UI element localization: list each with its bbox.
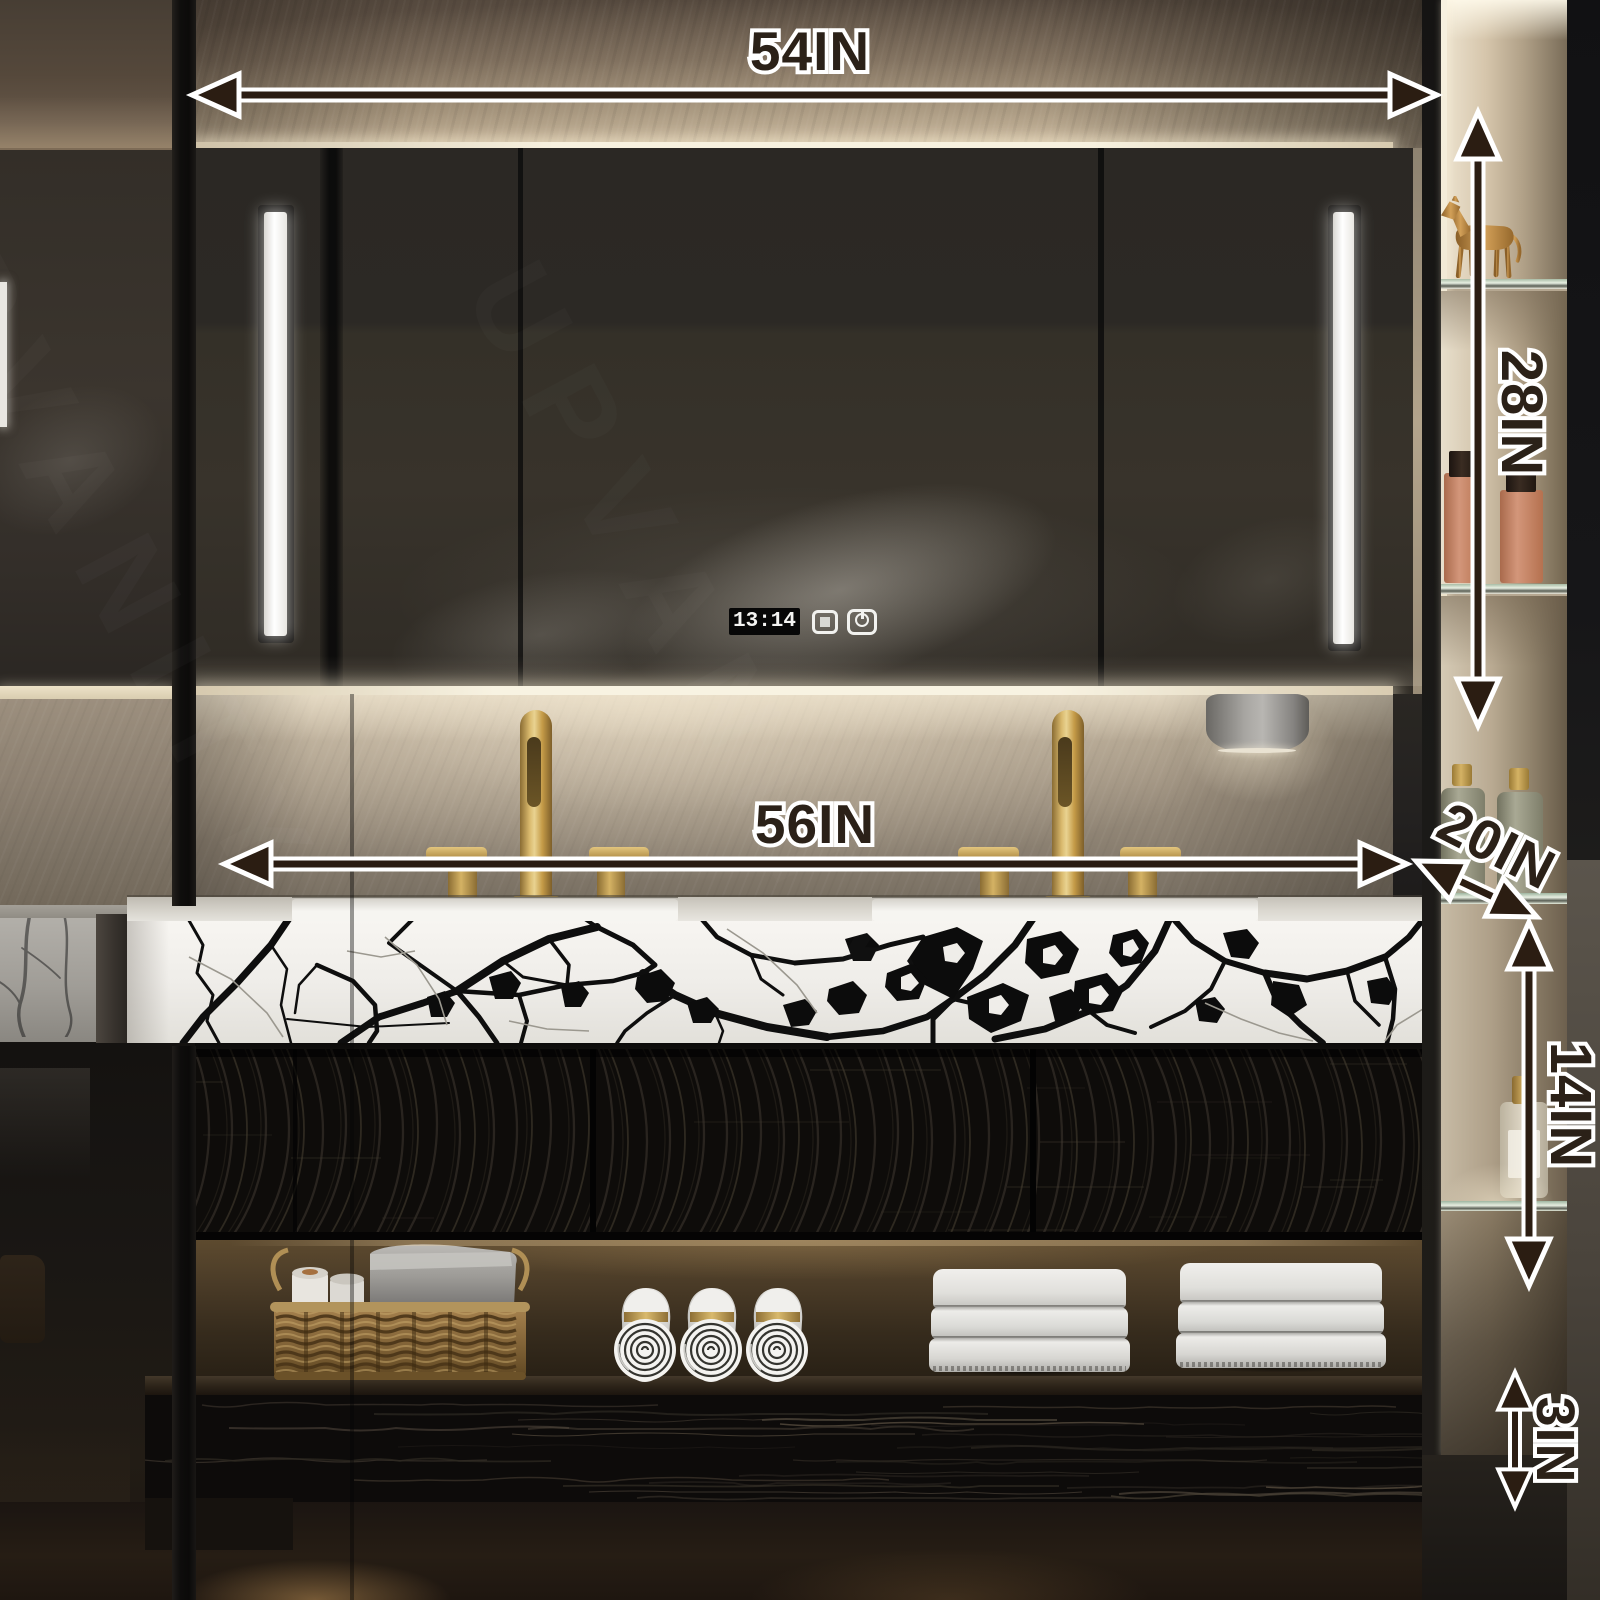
svg-text:56IN: 56IN: [755, 793, 875, 855]
svg-text:3IN: 3IN: [1525, 1396, 1585, 1483]
svg-text:28IN: 28IN: [1489, 350, 1554, 477]
svg-text:54IN: 54IN: [750, 20, 870, 82]
svg-text:14IN: 14IN: [1538, 1042, 1600, 1169]
